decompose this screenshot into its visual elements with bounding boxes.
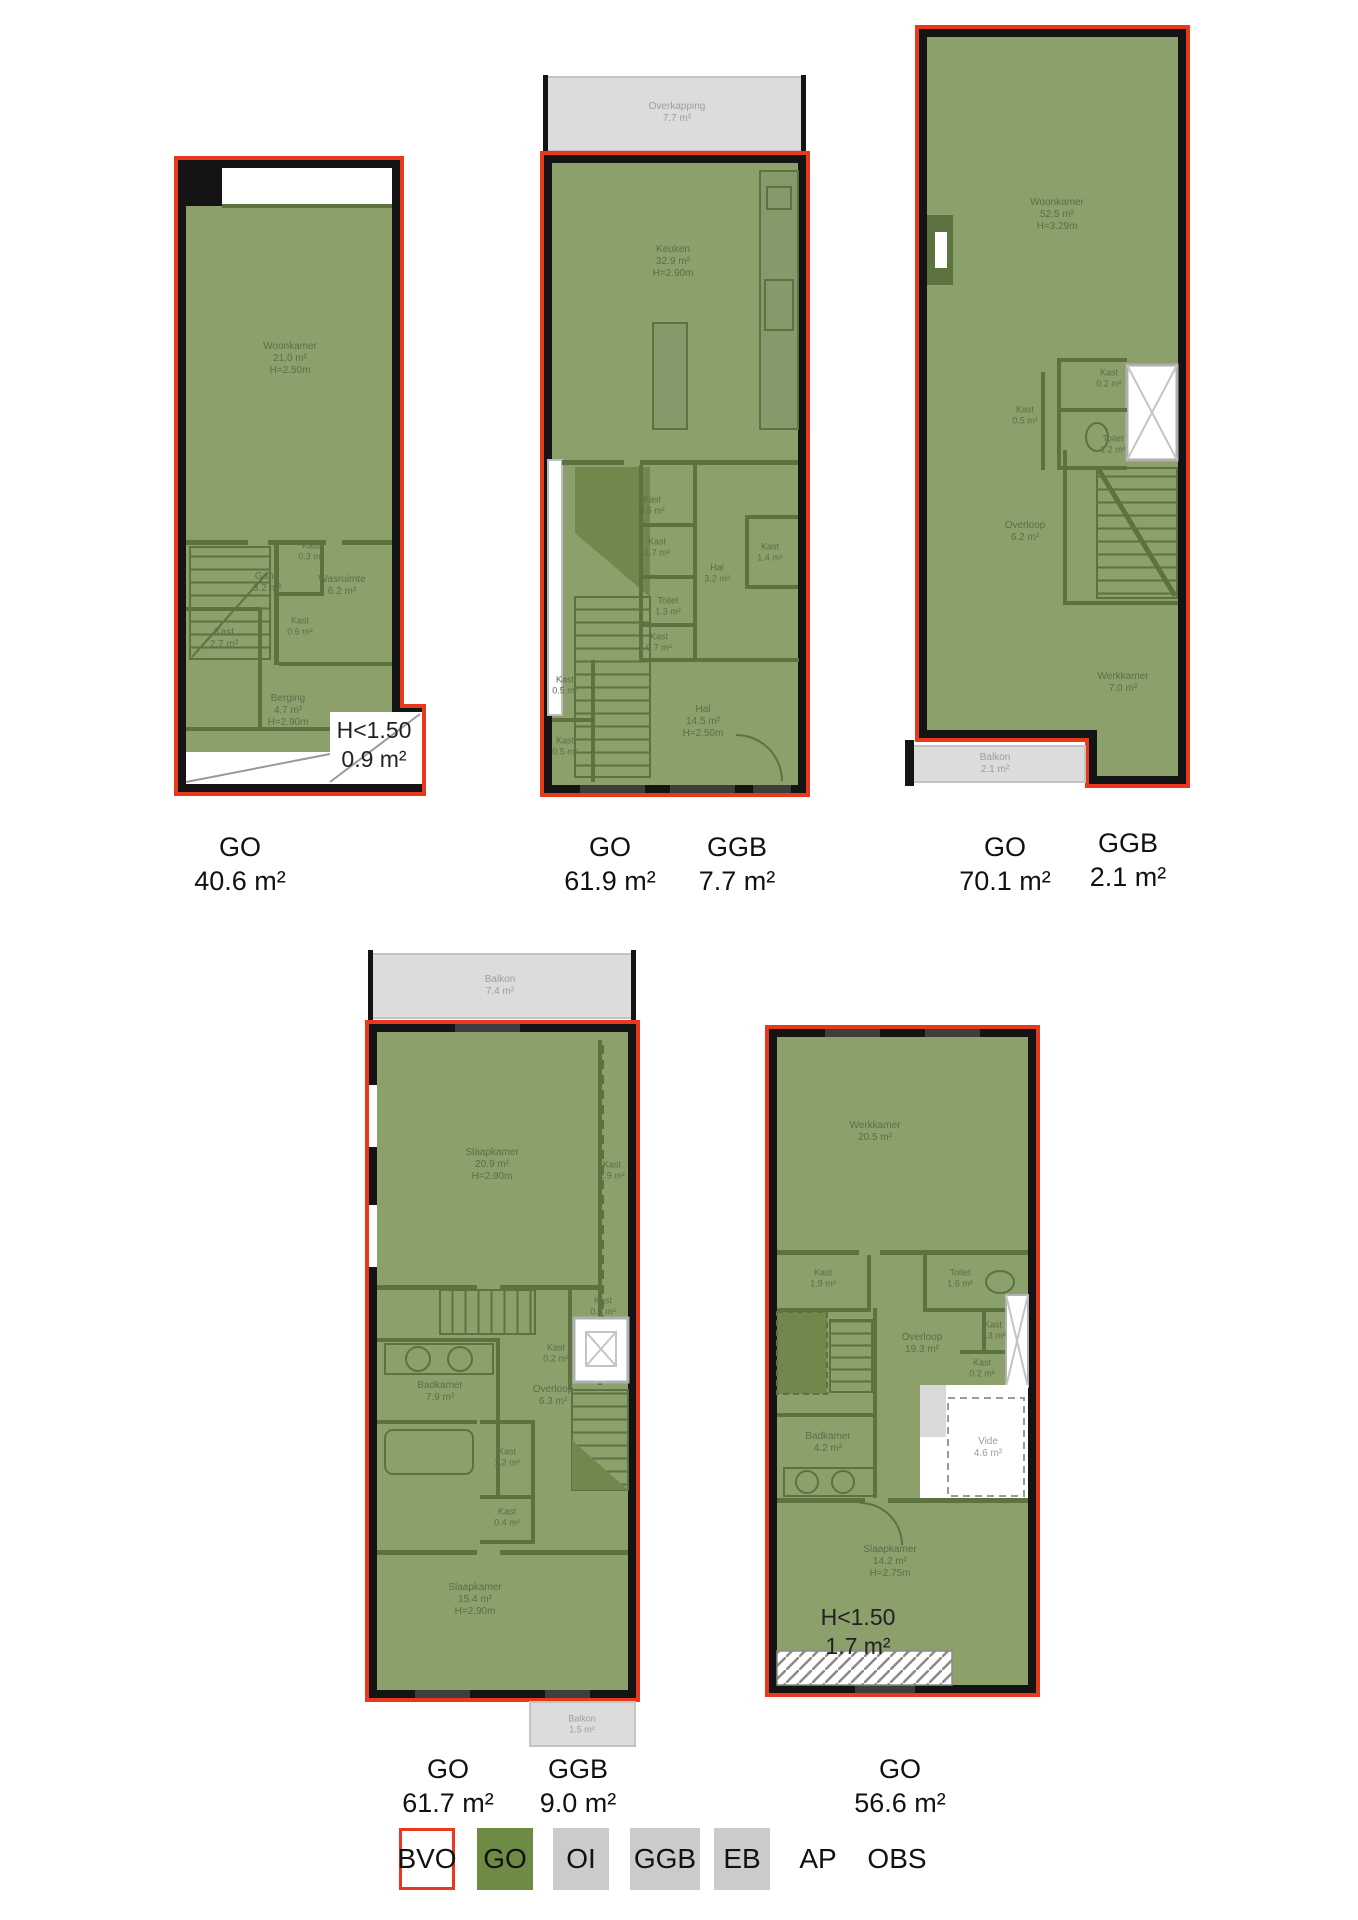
room-label-kast: Kast0.2 m² xyxy=(543,1343,569,1364)
room-label-balkon: Balkon7.4 m² xyxy=(485,974,516,998)
room-label-keuken: Keuken32.9 m²H=2.90m xyxy=(653,244,694,280)
storage-room xyxy=(777,1312,827,1394)
h150-label: H<1.500.9 m² xyxy=(337,716,412,774)
floorplan-3-drawing xyxy=(905,20,1200,820)
room-label-overloop: Overloop6.2 m² xyxy=(1005,520,1046,544)
room-label-slaapkamer: Slaapkamer15.4 m²H=2.90m xyxy=(448,1582,501,1618)
room-label-slaapkamer: Slaapkamer20.9 m²H=2.90m xyxy=(465,1147,518,1183)
room-label-badkamer: Badkamer7.9 m² xyxy=(417,1380,463,1404)
area-label-go-plan3: GO70.1 m² xyxy=(959,830,1051,898)
legend-label-ap: AP xyxy=(790,1828,846,1890)
room-label-kast: Kast1.4 m² xyxy=(757,542,783,563)
corner-block xyxy=(178,160,222,206)
legend-label-ggb: GGB xyxy=(634,1843,696,1875)
h150-label: H<1.501.7 m² xyxy=(821,1603,896,1661)
room-label-werkkamer: Werkkamer7.0 m² xyxy=(1098,671,1149,695)
room-label-gang: Gang3.2 m² xyxy=(253,571,281,595)
kitchen-island xyxy=(653,323,687,429)
room-label-kast: Kast1.7 m² xyxy=(644,537,670,558)
room-label-toilet: Toilet1.6 m² xyxy=(947,1268,973,1289)
room-label-kast: Kast0.5 m² xyxy=(552,675,578,696)
room-label-kast: Kast0.2 m² xyxy=(969,1358,995,1379)
door-gaps xyxy=(580,785,791,793)
room-label-vide: Vide4.6 m² xyxy=(974,1436,1002,1460)
floorplan-2: Overkapping7.7 m² Keuken32.9 m²H=2.90m K… xyxy=(535,75,820,805)
floorplan-1: Woonkamer21.0 m²H=2.50m Gang3.2 m² Kast0… xyxy=(170,152,430,812)
room-label-toilet: Toilet1.3 m² xyxy=(655,596,681,617)
room-label-slaapkamer: Slaapkamer14.2 m²H=2.75m xyxy=(863,1544,916,1580)
entry-recess xyxy=(222,168,392,204)
room-label-hal: Hal3.2 m² xyxy=(704,563,730,584)
legend-chip-bvo: BVO xyxy=(399,1828,455,1890)
room-label-hal: Hal14.5 m²H=2.50m xyxy=(683,704,724,740)
stairs xyxy=(830,1320,872,1392)
room-label-balkon: Balkon2.1 m² xyxy=(980,752,1011,776)
room-label-overkapping: Overkapping7.7 m² xyxy=(649,101,706,125)
area-label-ggb-plan2: GGB7.7 m² xyxy=(699,830,776,898)
room-label-kast: Kast1.9 m² xyxy=(810,1268,836,1289)
floorplan-3: Woonkamer52.5 m²H=3.29m Kast0.2 m² Kast0… xyxy=(905,20,1200,820)
room-label-kast: Kast0.4 m² xyxy=(494,1507,520,1528)
room-label-toilet: Toilet1.2 m² xyxy=(1100,434,1126,455)
room-label-woonkamer: Woonkamer21.0 m²H=2.50m xyxy=(263,341,317,377)
room-label-badkamer: Badkamer4.2 m² xyxy=(805,1431,851,1455)
area-label-go-plan5: GO56.6 m² xyxy=(854,1752,946,1820)
area-label-ggb-plan3: GGB2.1 m² xyxy=(1090,826,1167,894)
legend-label-bvo: BVO xyxy=(397,1843,456,1875)
area-label-go-plan1: GO40.6 m² xyxy=(194,830,286,898)
room-label-kast: Kast0.5 m² xyxy=(639,495,665,516)
room-label-balkon: Balkon1.5 m² xyxy=(568,1714,596,1735)
room-label-wasruimte: Wasruimte6.2 m² xyxy=(318,574,365,598)
room-label-kast: Kast0.5 m² xyxy=(552,736,578,757)
go-area xyxy=(186,168,414,784)
room-label-berging: Berging4.7 m²H=2.90m xyxy=(268,693,309,729)
legend-label-obs: OBS xyxy=(862,1828,932,1890)
room-label-kast: Kast1.3 m² xyxy=(980,1320,1006,1341)
room-label-kast: Kast2.9 m² xyxy=(599,1160,625,1181)
area-label-ggb-plan4: GGB9.0 m² xyxy=(540,1752,617,1820)
window-recess xyxy=(927,215,953,285)
room-label-kast: Kast0.5 m² xyxy=(1012,405,1038,426)
stairs xyxy=(575,597,650,777)
floorplan-5-drawing xyxy=(760,1020,1050,1730)
room-label-kast: Kast0.2 m² xyxy=(1096,368,1122,389)
floorplan-5: Werkkamer20.5 m² Kast1.9 m² Toilet1.6 m²… xyxy=(760,1020,1050,1730)
room-label-kast: Kast0.7 m² xyxy=(646,632,672,653)
room-label-kast: Kast2.7 m² xyxy=(210,627,238,651)
room-label-overloop: Overloop19.3 m² xyxy=(902,1332,943,1356)
room-label-kast: Kast1.2 m² xyxy=(494,1447,520,1468)
room-label-kast: Kast0.3 m² xyxy=(298,541,324,562)
room-label-overloop: Overloop6.3 m² xyxy=(533,1384,574,1408)
area-label-go-plan4: GO61.7 m² xyxy=(402,1752,494,1820)
legend-label-oi: OI xyxy=(566,1843,596,1875)
legend-chip-eb: EB xyxy=(714,1828,770,1890)
floorplan-4-drawing xyxy=(360,950,645,1800)
floorplan-4: Balkon7.4 m² Slaapkamer20.9 m²H=2.90m Ka… xyxy=(360,950,645,1800)
legend-chip-ggb: GGB xyxy=(630,1828,700,1890)
legend-label-eb: EB xyxy=(723,1843,760,1875)
room-label-kast: Kast0.5 m² xyxy=(590,1296,616,1317)
room-label-kast: Kast0.6 m² xyxy=(287,616,313,637)
legend-chip-go: GO xyxy=(477,1828,533,1890)
legend-chip-oi: OI xyxy=(553,1828,609,1890)
stairs-top xyxy=(440,1290,535,1334)
room-label-werkkamer: Werkkamer20.5 m² xyxy=(850,1120,901,1144)
room-label-woonkamer: Woonkamer52.5 m²H=3.29m xyxy=(1030,197,1084,233)
floorplan-sheet: Woonkamer21.0 m²H=2.50m Gang3.2 m² Kast0… xyxy=(0,0,1358,1920)
legend-label-go: GO xyxy=(483,1843,527,1875)
area-label-go-plan2: GO61.9 m² xyxy=(564,830,656,898)
floorplan-2-drawing xyxy=(535,75,820,805)
